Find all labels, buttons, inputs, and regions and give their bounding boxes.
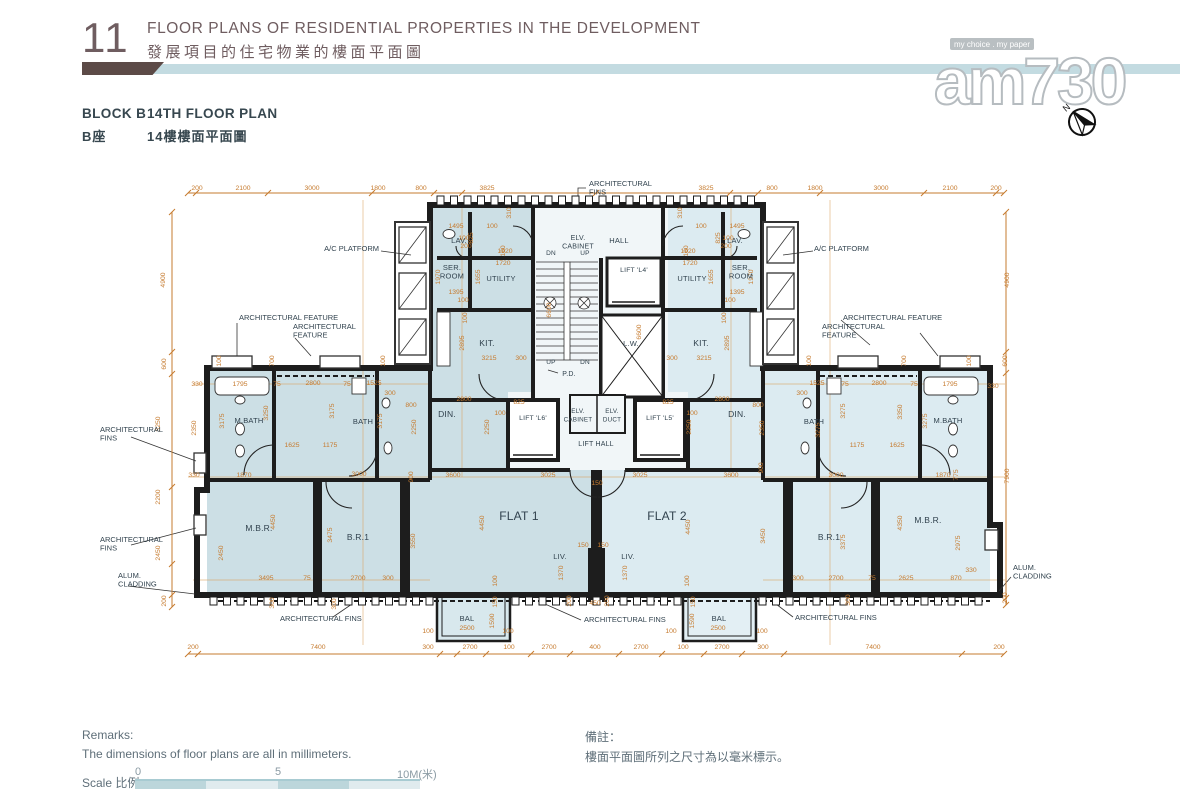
dim-label: 310 [677, 207, 684, 219]
dim-label: 825 [715, 232, 722, 244]
dim-label: 3000 [304, 185, 319, 192]
dim-label: 6600 [636, 324, 643, 339]
dim-label: 2975 [955, 535, 962, 550]
scale-bar-row: Scale 比例 : 0 5 10M(米) [82, 766, 562, 796]
dim-label: 3275 [840, 403, 847, 418]
remarks-text-zh: 樓面平面圖所列之尺寸為以毫米標示。 [585, 748, 789, 765]
lift-l6-box [508, 400, 558, 460]
dim-label: 2700 [350, 575, 365, 582]
annotation-label: ARCHITECTURALFINS [100, 425, 163, 443]
dim-label: 200 [566, 595, 573, 607]
dim-label: 330 [987, 383, 999, 390]
dim-label: 4350 [897, 515, 904, 530]
dim-label: 3000 [873, 185, 888, 192]
room-label: DIN. [728, 409, 746, 419]
dim-label: 1795 [942, 381, 957, 388]
scale-tick-0: 0 [135, 766, 141, 778]
dim-label: 75 [273, 381, 281, 388]
dim-label: 450 [589, 600, 601, 607]
dim-label: 700 [269, 355, 276, 367]
dim-label: 300 [331, 598, 338, 610]
dim-label: 3450 [760, 528, 767, 543]
dim-label: 1590 [689, 613, 696, 628]
dim-label: 2800 [714, 396, 729, 403]
dim-label: 300 [382, 575, 394, 582]
dim-label: 100 [806, 355, 813, 367]
brochure-page: 11 FLOOR PLANS OF RESIDENTIAL PROPERTIES… [0, 0, 1180, 803]
room-label: M.B.R. [914, 515, 941, 525]
dim-label: 2800 [871, 380, 886, 387]
dim-label: 1175 [850, 442, 865, 449]
dim-label: 1720 [495, 260, 510, 267]
dim-label: 100 [756, 628, 768, 635]
dim-label: 3175 [377, 413, 384, 428]
dim-label: 100 [684, 575, 691, 587]
dim-label: 150 [690, 596, 697, 608]
dim-label: 75 [841, 381, 849, 388]
room-label: LAV. [727, 236, 743, 245]
dim-label: 4900 [160, 272, 167, 287]
dim-label: 3350 [897, 404, 904, 419]
dim-label: 1655 [475, 269, 482, 284]
room-label: LAV. [451, 236, 467, 245]
room-label: KIT. [479, 338, 494, 348]
dim-label: 2800 [456, 396, 471, 403]
dim-label: 4450 [479, 515, 486, 530]
dim-label: 75 [868, 575, 876, 582]
dim-label: 3825 [698, 185, 713, 192]
dim-label: 870 [950, 575, 962, 582]
annotation-label: ARCHITECTURAL FINS [584, 615, 666, 624]
dim-label: 3550 [410, 533, 417, 548]
annotation-label: A/C PLATFORM [814, 244, 869, 253]
dim-label: 800 [766, 185, 778, 192]
room-label: LIFT 'L6' [519, 415, 547, 422]
dim-label: 300 [269, 597, 276, 609]
dim-label: 900 [758, 462, 765, 474]
dim-label: 3175 [219, 413, 226, 428]
annotation-label: ARCHITECTURALFINS [589, 179, 652, 197]
dim-label: 3000 [351, 471, 366, 478]
dim-label: 1395 [448, 289, 463, 296]
dim-label: 300 [422, 644, 434, 651]
dim-label: 300 [757, 644, 769, 651]
dim-label: 800 [405, 402, 417, 409]
dim-label: 330 [191, 381, 203, 388]
dim-label: 3825 [479, 185, 494, 192]
scale-bar [135, 779, 420, 790]
dim-label: 100 [492, 575, 499, 587]
dim-label: 160 [500, 245, 507, 257]
room-label: BATH [804, 417, 824, 426]
am730-watermark: my choice . my paper am730 N [930, 28, 1160, 138]
dim-label: 1590 [489, 613, 496, 628]
remarks-text-en: The dimensions of floor plans are all in… [82, 747, 351, 761]
annotation-label: ARCHITECTURAL FEATURE [239, 313, 338, 322]
room-label: DN [546, 250, 556, 257]
dim-label: 330 [188, 472, 200, 479]
room-label: HALL [609, 236, 629, 245]
room-label: SER.ROOM [729, 263, 753, 281]
dim-label: 1395 [729, 289, 744, 296]
dim-label: 100 [724, 297, 736, 304]
dim-label: 100 [677, 644, 689, 651]
dim-label: 2450 [155, 545, 162, 560]
dim-label: 150 [577, 542, 589, 549]
dim-label: 75 [303, 575, 311, 582]
dim-label: 300 [796, 390, 808, 397]
room-label: ELV.DUCT [603, 408, 621, 424]
dim-label: 1800 [807, 185, 822, 192]
dim-label: 1870 [236, 472, 251, 479]
dim-label: 1370 [558, 565, 565, 580]
dim-label: 825 [513, 399, 525, 406]
dim-label: 100 [503, 644, 515, 651]
dim-label: 75 [910, 381, 918, 388]
dim-label: 2700 [828, 575, 843, 582]
dim-label: 2200 [155, 489, 162, 504]
dim-label: 310 [506, 207, 513, 219]
dim-label: 2350 [191, 420, 198, 435]
dim-label: 775 [953, 469, 960, 481]
dim-label: 100 [486, 223, 498, 230]
dim-label: 3375 [840, 534, 847, 549]
dim-label: 300 [845, 594, 852, 606]
dim-label: 2700 [714, 644, 729, 651]
watermark-logo-text: am730 [934, 44, 1125, 118]
dim-label: 400 [589, 644, 601, 651]
dim-label: 1720 [682, 260, 697, 267]
dim-label: 800 [752, 402, 764, 409]
room-label: SER.ROOM [440, 263, 464, 281]
annotation-label: ALUM.CLADDING [118, 571, 157, 589]
dim-label: 3275 [922, 413, 929, 428]
dim-label: 100 [380, 355, 387, 367]
dim-label: 2450 [218, 545, 225, 560]
room-label: DN [580, 359, 590, 366]
dim-label: 3600 [723, 472, 738, 479]
dim-label: 2700 [462, 644, 477, 651]
dim-label: 330 [965, 567, 977, 574]
room-label: B.R.1 [347, 532, 369, 542]
dim-label: 1495 [448, 223, 463, 230]
annotation-label: ARCHITECTURAL FINS [795, 613, 877, 622]
dim-label: 1870 [935, 472, 950, 479]
remarks-title-zh: 備註： [585, 728, 621, 745]
dim-label: 2800 [305, 380, 320, 387]
dim-label: 100 [502, 628, 514, 635]
dim-label: 150 [492, 596, 499, 608]
lift-l4-box [607, 258, 661, 306]
annotation-label: ARCHITECTURALFEATURE [293, 322, 356, 340]
dim-label: 7900 [1004, 468, 1011, 483]
room-label: FLAT 1 [499, 509, 539, 523]
annotation-label: ARCHITECTURALFEATURE [822, 322, 885, 340]
dim-label: 200 [990, 185, 1002, 192]
dim-label: 100 [665, 628, 677, 635]
dim-label: 2895 [459, 335, 466, 350]
kitchen-counter [750, 312, 763, 366]
dim-label: 1625 [889, 442, 904, 449]
dim-label: 600 [161, 358, 168, 370]
dim-label: 150 [597, 542, 609, 549]
dim-label: 7400 [310, 644, 325, 651]
dim-label: 2500 [710, 625, 725, 632]
dim-label: 200 [187, 644, 199, 651]
dim-label: 1625 [284, 442, 299, 449]
room-label: LIV. [621, 552, 634, 561]
dim-label: 100 [216, 355, 223, 367]
dim-label: 1525 [809, 380, 824, 387]
dim-label: 150 [591, 480, 603, 487]
room-label: KIT. [693, 338, 708, 348]
dim-label: 3600 [445, 472, 460, 479]
room-label: LIFT HALL [578, 441, 614, 448]
annotation-label: A/C PLATFORM [324, 244, 379, 253]
dim-label: 3025 [632, 472, 647, 479]
dim-label: 3000 [828, 472, 843, 479]
dim-label: 2350 [759, 420, 766, 435]
dim-label: 200 [993, 644, 1005, 651]
room-label: P.D. [562, 371, 576, 378]
dim-label: 800 [415, 185, 427, 192]
room-label: M.BATH [235, 416, 264, 425]
room-label: BAL [460, 614, 475, 623]
dim-label: 100 [721, 312, 728, 324]
remarks-title-en: Remarks: [82, 728, 133, 742]
dim-label: 600 [1002, 355, 1009, 367]
dim-label: 100 [686, 410, 698, 417]
dim-label: 300 [792, 575, 804, 582]
dim-label: 2625 [898, 575, 913, 582]
dim-label: 2700 [633, 644, 648, 651]
room-label: UP [580, 250, 589, 257]
dim-label: 100 [695, 223, 707, 230]
dim-label: 6600 [546, 302, 553, 317]
dim-label: 2250 [484, 419, 491, 434]
room-label: UTILITY [677, 274, 706, 283]
room-label: BAL [712, 614, 727, 623]
dim-label: 2895 [724, 335, 731, 350]
dim-label: 200 [604, 595, 611, 607]
room-label: DIN. [438, 409, 456, 419]
lift-l5-box [635, 400, 685, 460]
dim-label: 1495 [729, 223, 744, 230]
dim-label: 100 [457, 297, 469, 304]
room-label: LIFT 'L5' [646, 415, 674, 422]
dim-label: 1175 [323, 442, 338, 449]
kitchen-counter [437, 312, 450, 366]
dim-label: 825 [468, 232, 475, 244]
dim-label: 3250 [263, 405, 270, 420]
annotation-label: ARCHITECTURAL FINS [280, 614, 362, 623]
dim-label: 100 [462, 312, 469, 324]
room-label: LIV. [553, 552, 566, 561]
dim-label: 300 [666, 355, 678, 362]
dim-label: 3215 [696, 355, 711, 362]
room-label: UP [546, 359, 555, 366]
dim-label: 200 [191, 185, 203, 192]
dim-label: 825 [662, 399, 674, 406]
room-label: UTILITY [486, 274, 515, 283]
dim-label: 700 [901, 355, 908, 367]
annotation-label: ALUM.CLADDING [1013, 563, 1052, 581]
room-label: FLAT 2 [647, 509, 687, 523]
dim-label: 100 [422, 628, 434, 635]
dim-label: 3495 [258, 575, 273, 582]
dim-label: 2250 [686, 419, 693, 434]
room-label: L.W. [623, 339, 639, 348]
dim-label: 1800 [370, 185, 385, 192]
dim-label: 75 [343, 381, 351, 388]
annotation-label: ARCHITECTURAL FEATURE [843, 313, 942, 322]
dim-label: 2100 [235, 185, 250, 192]
dim-label: 2500 [459, 625, 474, 632]
scale-tick-5: 5 [275, 766, 281, 778]
dim-label: 1525 [366, 380, 381, 387]
dim-label: 2700 [541, 644, 556, 651]
dim-label: 1795 [232, 381, 247, 388]
dim-label: 160 [683, 245, 690, 257]
dim-label: 3175 [329, 403, 336, 418]
dim-label: 4900 [1004, 272, 1011, 287]
room-label: BATH [353, 417, 373, 426]
dim-label: 1655 [708, 269, 715, 284]
dim-label: 900 [408, 471, 415, 483]
dim-label: 3025 [540, 472, 555, 479]
room-label: B.R.1 [818, 532, 840, 542]
room-label: LIFT 'L4' [620, 267, 648, 274]
dim-label: 200 [1002, 592, 1009, 604]
dim-label: 2100 [942, 185, 957, 192]
room-label: M.B.R. [245, 523, 272, 533]
dim-label: 7400 [865, 644, 880, 651]
dim-label: 3215 [481, 355, 496, 362]
room-label: M.BATH [934, 416, 963, 425]
annotation-label: ARCHITECTURALFINS [100, 535, 163, 553]
dim-label: 2250 [411, 419, 418, 434]
dim-label: 100 [494, 410, 506, 417]
dim-label: 1370 [622, 565, 629, 580]
dim-label: 200 [161, 595, 168, 607]
dim-label: 100 [966, 355, 973, 367]
dim-label: 3475 [327, 527, 334, 542]
dim-label: 300 [384, 390, 396, 397]
dim-label: 300 [515, 355, 527, 362]
